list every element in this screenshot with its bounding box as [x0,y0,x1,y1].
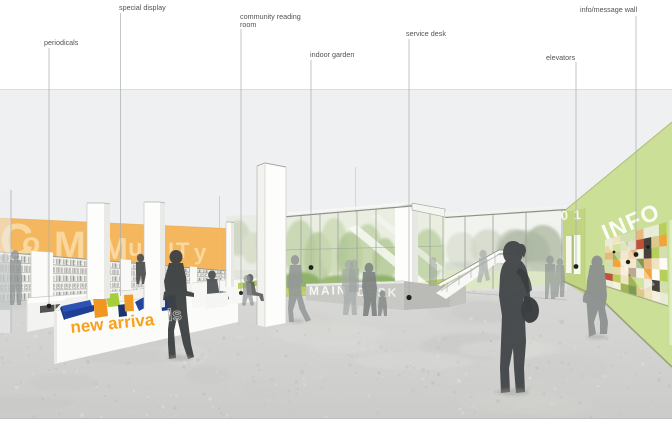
svg-text:y: y [194,240,207,265]
svg-text:ls: ls [167,305,183,325]
svg-text:info/message wall: info/message wall [580,5,638,14]
svg-text:indoor garden: indoor garden [310,50,354,59]
svg-text:periodicals: periodicals [44,38,79,47]
svg-text:service desk: service desk [406,29,446,38]
svg-text:elevators: elevators [546,53,576,62]
svg-text:0 1: 0 1 [560,207,582,223]
svg-text:room: room [240,20,256,29]
svg-text:special display: special display [119,3,166,12]
svg-text:MAIN: MAIN [309,283,348,298]
